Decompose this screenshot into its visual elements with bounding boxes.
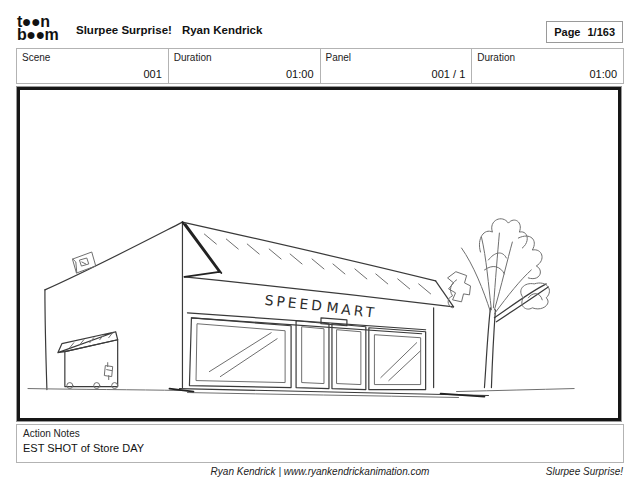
storefront-windows bbox=[187, 313, 425, 390]
panel-duration-cell: Duration 01:00 bbox=[472, 49, 623, 83]
panel-duration-value: 01:00 bbox=[589, 68, 617, 80]
ground-line bbox=[28, 389, 574, 398]
door-right-inner bbox=[337, 330, 361, 385]
ground-left bbox=[28, 389, 182, 391]
store-sign-speed: SPEED bbox=[264, 292, 326, 314]
left-roofline bbox=[45, 222, 183, 290]
page-title: Slurpee Surprise!Ryan Kendrick bbox=[76, 24, 262, 36]
storyboard-panel-frame: SPEED MART bbox=[16, 86, 622, 422]
fascia-right-edge bbox=[436, 281, 454, 307]
dumpster-side-mark bbox=[105, 363, 113, 380]
toonboom-logo-line2: b●●m bbox=[17, 28, 58, 41]
page-value: 1/163 bbox=[587, 26, 615, 38]
dumpster-wheel-left bbox=[67, 383, 73, 389]
left-window-inner bbox=[196, 324, 285, 383]
action-notes-box: Action Notes EST SHOT of Store DAY bbox=[16, 424, 624, 463]
panel-duration-label: Duration bbox=[477, 52, 515, 63]
page-label: Page bbox=[554, 26, 580, 38]
tree-foliage-top bbox=[479, 219, 527, 252]
dumpster-wheel-right bbox=[112, 383, 118, 389]
scene-duration-cell: Duration 01:00 bbox=[169, 49, 321, 83]
footer-project: Slurpee Surprise! bbox=[546, 466, 623, 477]
fascia-left-cap bbox=[182, 222, 221, 277]
tree-foliage-right bbox=[518, 236, 542, 279]
scene-value: 001 bbox=[143, 68, 161, 80]
door-left-inner bbox=[302, 327, 324, 384]
page-footer: Ryan Kendrick | www.ryankendrickanimatio… bbox=[0, 466, 640, 480]
storyboard-panel-canvas: SPEED MART bbox=[17, 87, 621, 421]
scene-cell: Scene 001 bbox=[17, 49, 169, 83]
window-band-top bbox=[187, 313, 425, 334]
action-notes-text: EST SHOT of Store DAY bbox=[23, 442, 617, 454]
panel-cell: Panel 001 / 1 bbox=[321, 49, 473, 83]
store-building: SPEED MART bbox=[45, 222, 454, 389]
left-window-reflection bbox=[209, 333, 277, 377]
rooftop-vent bbox=[73, 252, 96, 273]
fascia-hatching bbox=[204, 234, 430, 294]
page-number-box: Page 1/163 bbox=[546, 21, 623, 43]
footer-credit: Ryan Kendrick | www.ryankendrickanimatio… bbox=[0, 466, 640, 477]
left-wall-edge bbox=[45, 290, 47, 390]
action-notes-label: Action Notes bbox=[23, 428, 617, 439]
panel-label: Panel bbox=[326, 52, 352, 63]
tree bbox=[448, 219, 550, 388]
tree-trunk bbox=[484, 308, 495, 388]
storyboard-page: t●●n b●●m Slurpee Surprise!Ryan Kendrick… bbox=[0, 0, 640, 495]
store-sign-mart: MART bbox=[326, 299, 378, 321]
scene-label: Scene bbox=[22, 52, 50, 63]
panel-info-row: Scene 001 Duration 01:00 Panel 001 / 1 D… bbox=[16, 48, 624, 84]
right-window-reflection bbox=[381, 343, 421, 381]
scene-duration-label: Duration bbox=[174, 52, 212, 63]
project-title: Slurpee Surprise! bbox=[76, 24, 172, 36]
toonboom-logo: t●●n b●●m bbox=[17, 15, 58, 41]
dumpster-wheel-middle bbox=[94, 383, 100, 389]
dumpster-lid bbox=[58, 332, 118, 353]
tree-foliage-inner bbox=[484, 253, 506, 274]
ground-right bbox=[457, 389, 575, 392]
dumpster bbox=[58, 332, 118, 389]
curb-front-2 bbox=[187, 393, 458, 398]
scene-duration-value: 01:00 bbox=[286, 68, 314, 80]
panel-value: 001 / 1 bbox=[432, 68, 466, 80]
store-sketch: SPEED MART bbox=[20, 90, 618, 418]
tree-branches bbox=[462, 233, 532, 314]
author-name: Ryan Kendrick bbox=[182, 24, 263, 36]
